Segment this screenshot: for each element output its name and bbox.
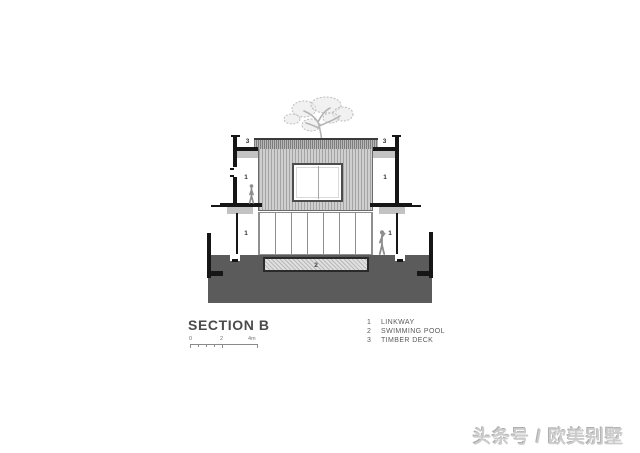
left-foundation-pad	[232, 259, 238, 262]
scale-bar-line	[190, 344, 258, 345]
person-figure-right	[377, 230, 387, 255]
roof-band	[254, 138, 378, 149]
left-door-jamb-top	[230, 168, 234, 170]
legend-item-swimming-pool: 2 SWIMMING POOL	[367, 327, 445, 336]
label-timber-deck-right: 3	[374, 138, 395, 146]
scale-tick-0: 0	[189, 336, 192, 342]
scale-bar-tick	[222, 344, 223, 348]
right-parapet	[379, 207, 405, 214]
legend-num: 2	[367, 327, 381, 336]
legend-item-timber-deck: 3 TIMBER DECK	[367, 336, 445, 345]
legend-num: 3	[367, 336, 381, 345]
left-retaining-step	[207, 271, 223, 276]
right-retaining-step	[417, 271, 433, 276]
right-slab-ledge	[412, 205, 421, 207]
legend-item-linkway: 1 LINKWAY	[367, 318, 445, 327]
left-door-jamb-bottom	[230, 175, 234, 177]
window-mullion	[318, 166, 319, 199]
right-foundation-pad	[397, 259, 403, 262]
tree-icon	[276, 96, 364, 142]
scale-bar-tick	[198, 344, 199, 347]
scale-bar: 0 2 4m	[190, 336, 262, 352]
label-linkway-upper-right: 1	[375, 174, 395, 182]
right-ground-wall	[396, 213, 398, 255]
scale-bar-tick	[206, 344, 207, 347]
label-swimming-pool: 2	[265, 262, 367, 269]
scale-bar-tick	[257, 344, 258, 348]
right-outer-wall	[395, 136, 399, 213]
label-linkway-upper-left: 1	[236, 174, 256, 182]
label-timber-deck-left: 3	[237, 138, 258, 146]
label-linkway-lower-left: 1	[236, 230, 256, 238]
person-figure-left	[247, 184, 256, 204]
legend-label: LINKWAY	[381, 318, 415, 327]
legend: 1 LINKWAY 2 SWIMMING POOL 3 TIMBER DECK	[367, 318, 445, 345]
legend-label: TIMBER DECK	[381, 336, 433, 345]
scale-tick-4: 4m	[248, 336, 256, 342]
left-slab-ledge	[211, 205, 220, 207]
legend-label: SWIMMING POOL	[381, 327, 445, 336]
upper-window	[292, 163, 343, 202]
left-parapet	[227, 207, 253, 214]
right-deck-fill	[373, 151, 395, 158]
legend-num: 1	[367, 318, 381, 327]
architectural-section-drawing: 3 1 1 3 1 1 2 SEC	[0, 0, 640, 453]
left-deck-fill	[237, 151, 258, 158]
scale-bar-tick	[214, 344, 215, 347]
watermark-text: 头条号 / 欧美别墅	[473, 423, 624, 449]
ground-floor-glazing	[258, 212, 373, 255]
scale-tick-2: 2	[220, 336, 223, 342]
section-title: SECTION B	[188, 317, 270, 333]
swimming-pool: 2	[263, 257, 369, 272]
scale-bar-tick	[190, 344, 191, 348]
